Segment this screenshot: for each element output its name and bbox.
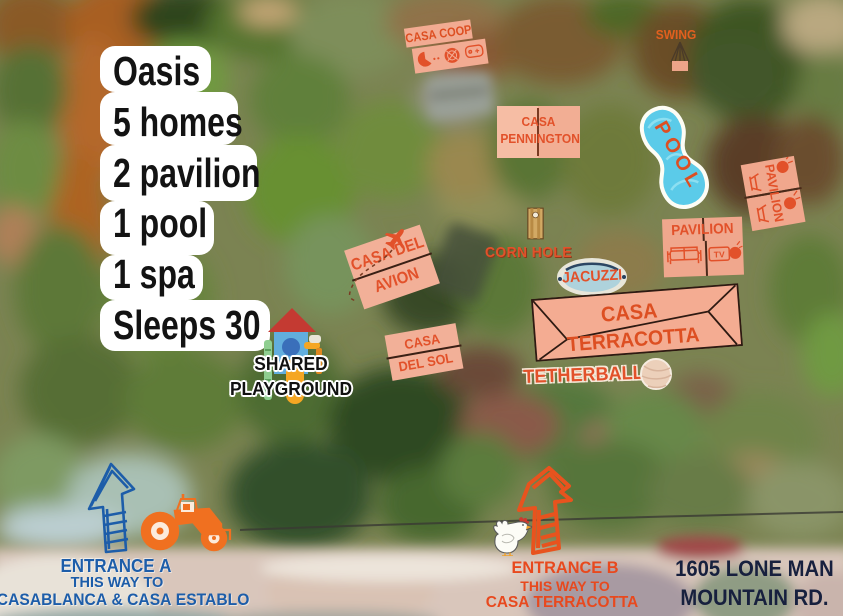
- svg-text:TV: TV: [714, 249, 726, 259]
